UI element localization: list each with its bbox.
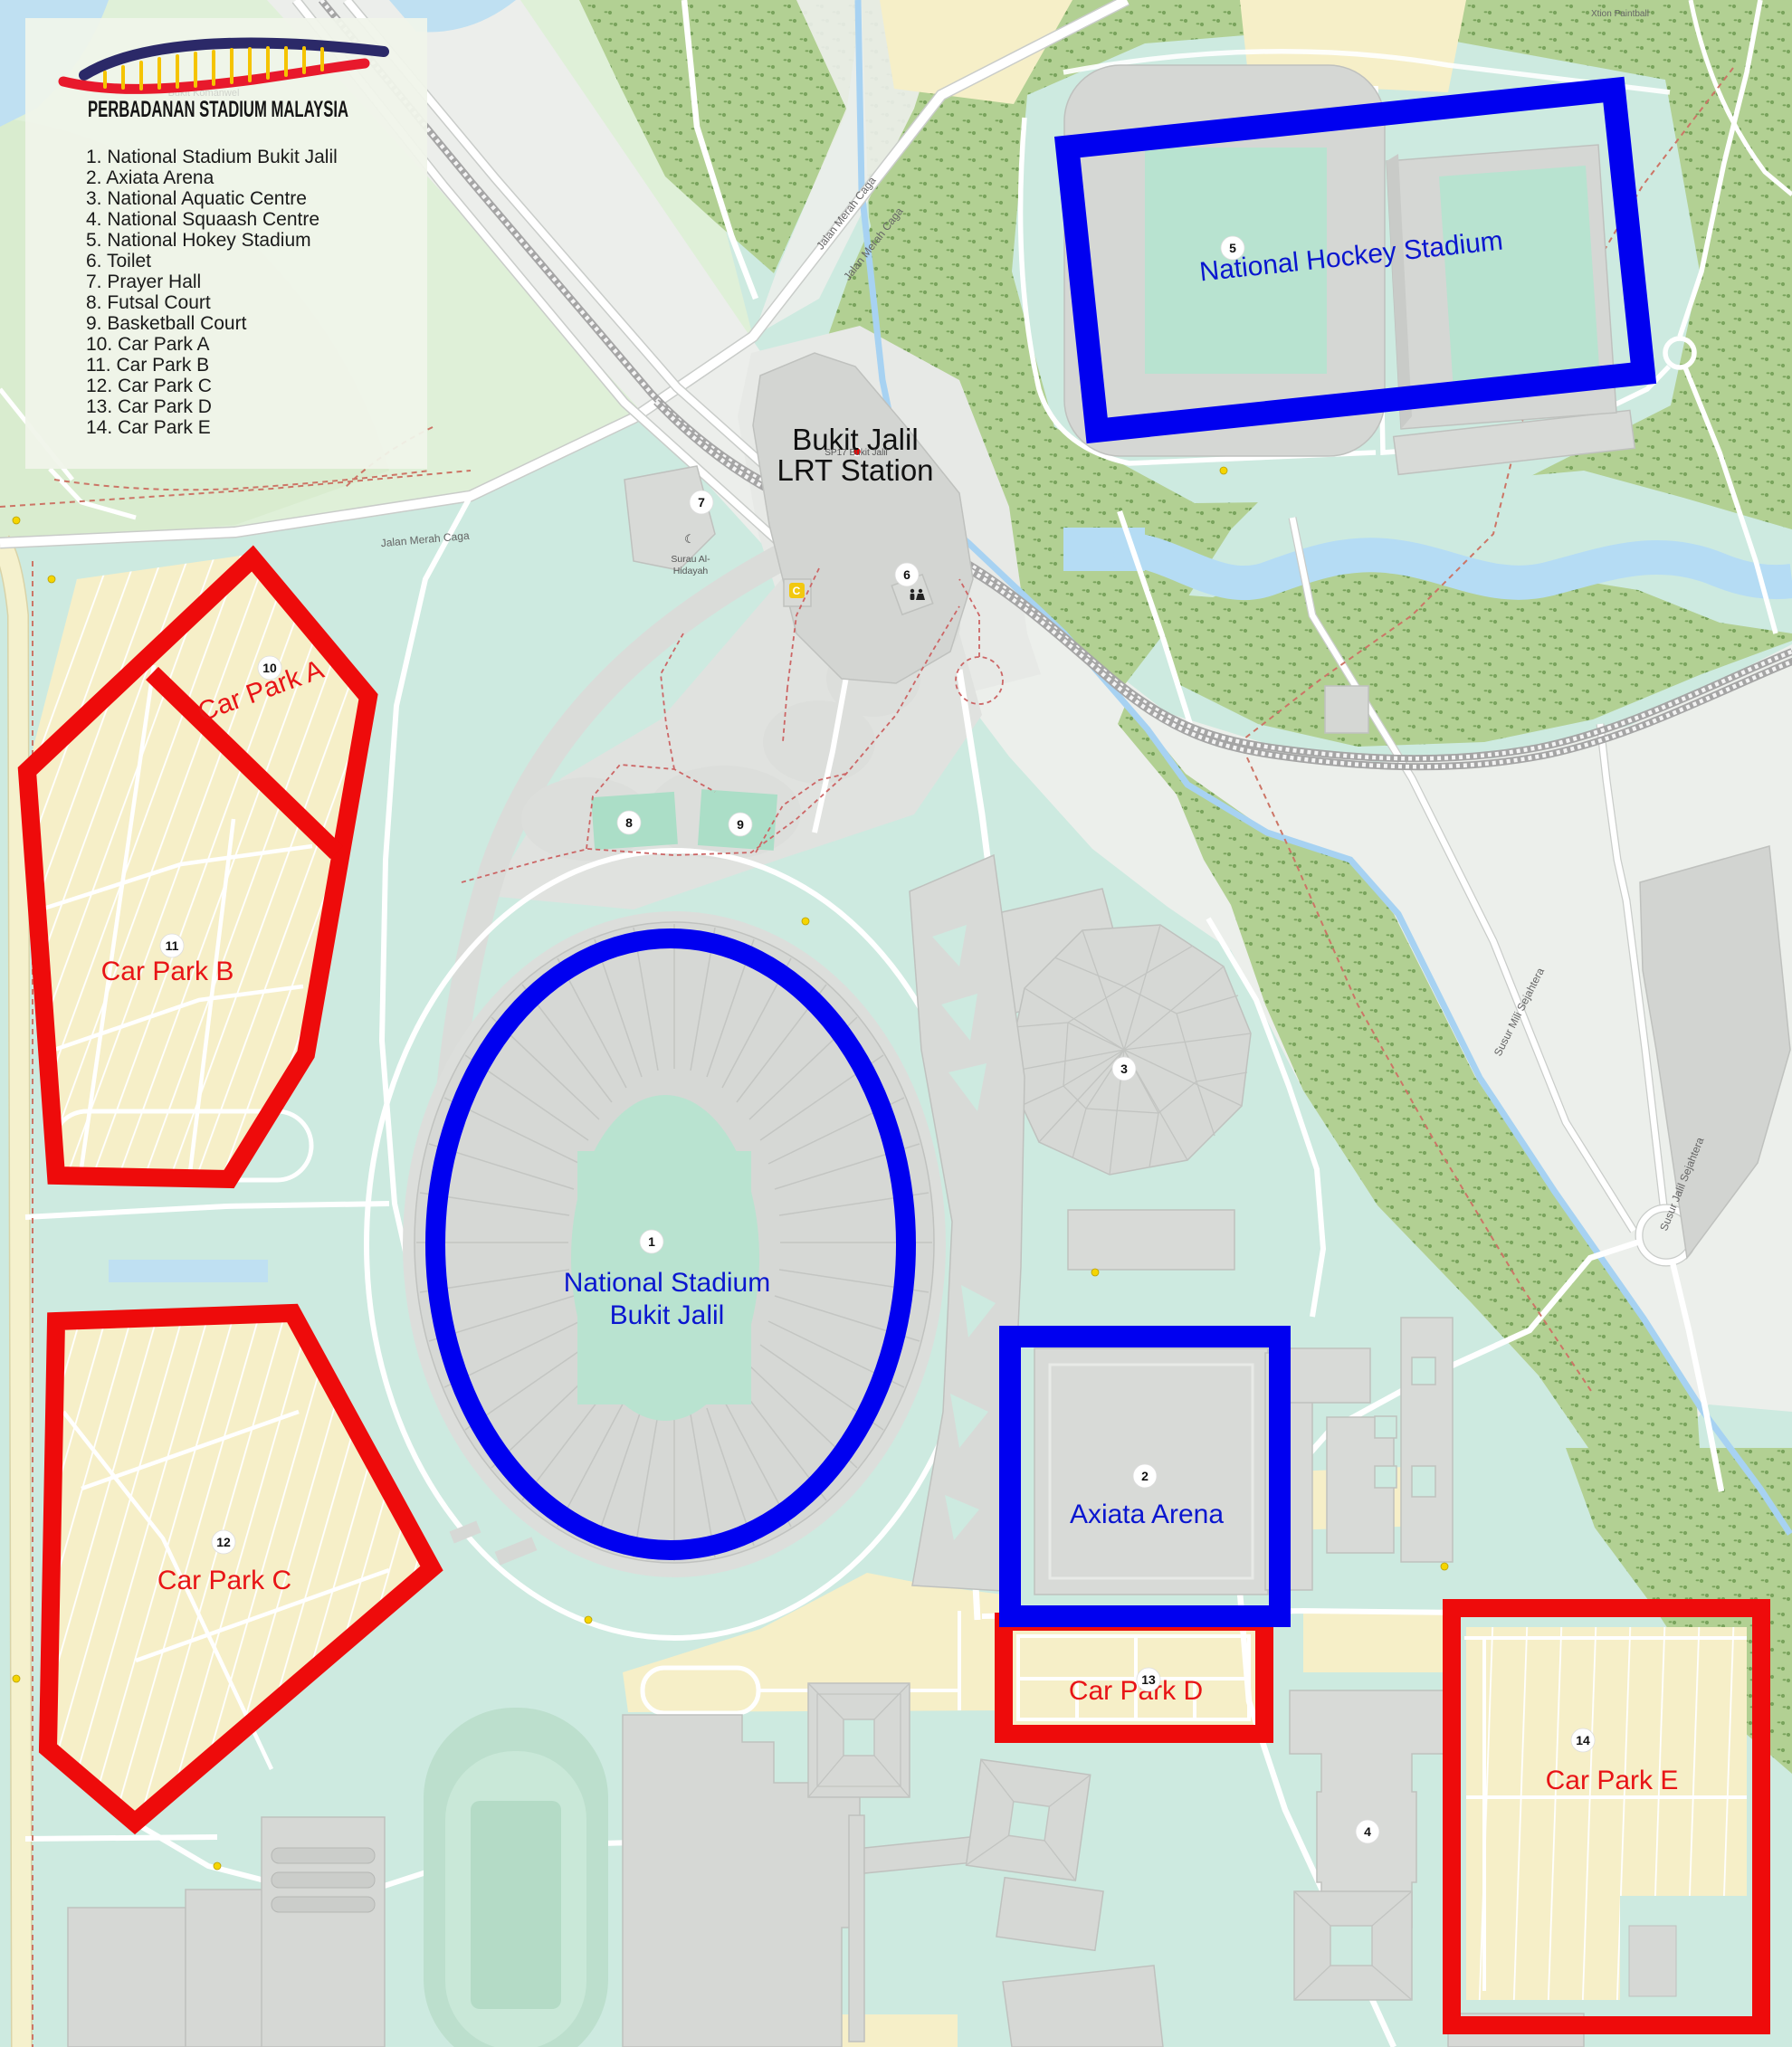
svg-text:5. National Hokey Stadium: 5. National Hokey Stadium <box>86 230 311 251</box>
svg-text:☾: ☾ <box>684 532 695 546</box>
svg-text:9: 9 <box>737 817 744 832</box>
svg-text:8: 8 <box>625 815 633 830</box>
svg-text:National Stadium: National Stadium <box>564 1268 770 1298</box>
svg-text:Surau Al-: Surau Al- <box>671 554 710 565</box>
svg-text:LRT Station: LRT Station <box>777 453 933 487</box>
svg-text:7: 7 <box>698 495 705 509</box>
svg-text:Car Park E: Car Park E <box>1546 1766 1679 1795</box>
svg-text:Axiata Arena: Axiata Arena <box>1070 1500 1224 1529</box>
svg-text:Hidayah: Hidayah <box>673 566 709 576</box>
svg-text:Bukit Jalil: Bukit Jalil <box>610 1300 725 1330</box>
svg-text:6. Toilet: 6. Toilet <box>86 251 151 271</box>
svg-text:10: 10 <box>262 661 277 675</box>
svg-text:C: C <box>793 585 801 597</box>
svg-text:4. National Squaash Centre: 4. National Squaash Centre <box>86 209 319 230</box>
svg-text:7. Prayer Hall: 7. Prayer Hall <box>86 271 201 292</box>
svg-text:9. Basketball Court: 9. Basketball Court <box>86 313 247 334</box>
svg-text:2: 2 <box>1141 1469 1149 1483</box>
svg-text:PERBADANAN STADIUM MALAYSIA: PERBADANAN STADIUM MALAYSIA <box>88 97 348 122</box>
svg-text:11. Car Park B: 11. Car Park B <box>86 355 209 376</box>
svg-text:13. Car Park D: 13. Car Park D <box>86 396 212 417</box>
svg-text:10. Car Park A: 10. Car Park A <box>86 334 210 355</box>
svg-text:12: 12 <box>216 1535 231 1549</box>
svg-text:13: 13 <box>1141 1672 1156 1687</box>
svg-text:1: 1 <box>648 1234 655 1249</box>
svg-text:2. Axiata Arena: 2. Axiata Arena <box>86 167 214 188</box>
svg-text:12. Car Park C: 12. Car Park C <box>86 376 212 396</box>
svg-text:1. National Stadium Bukit Jali: 1. National Stadium Bukit Jalil <box>86 147 338 167</box>
svg-text:3: 3 <box>1120 1062 1128 1076</box>
svg-text:4: 4 <box>1364 1824 1371 1839</box>
svg-text:5: 5 <box>1229 241 1236 255</box>
svg-text:3. National Aquatic Centre: 3. National Aquatic Centre <box>86 188 307 209</box>
svg-text:Car Park D: Car Park D <box>1069 1676 1203 1706</box>
svg-text:Car Park C: Car Park C <box>157 1566 291 1595</box>
svg-text:6: 6 <box>903 567 910 582</box>
svg-text:14. Car Park E: 14. Car Park E <box>86 417 211 438</box>
svg-text:SP17 Bukit Jalil: SP17 Bukit Jalil <box>825 448 887 458</box>
svg-text:8. Futsal Court: 8. Futsal Court <box>86 292 211 313</box>
svg-text:11: 11 <box>166 938 179 953</box>
svg-text:Xtion Paintball: Xtion Paintball <box>1591 9 1649 19</box>
svg-text:Car Park B: Car Park B <box>101 957 234 986</box>
svg-text:14: 14 <box>1576 1733 1590 1747</box>
